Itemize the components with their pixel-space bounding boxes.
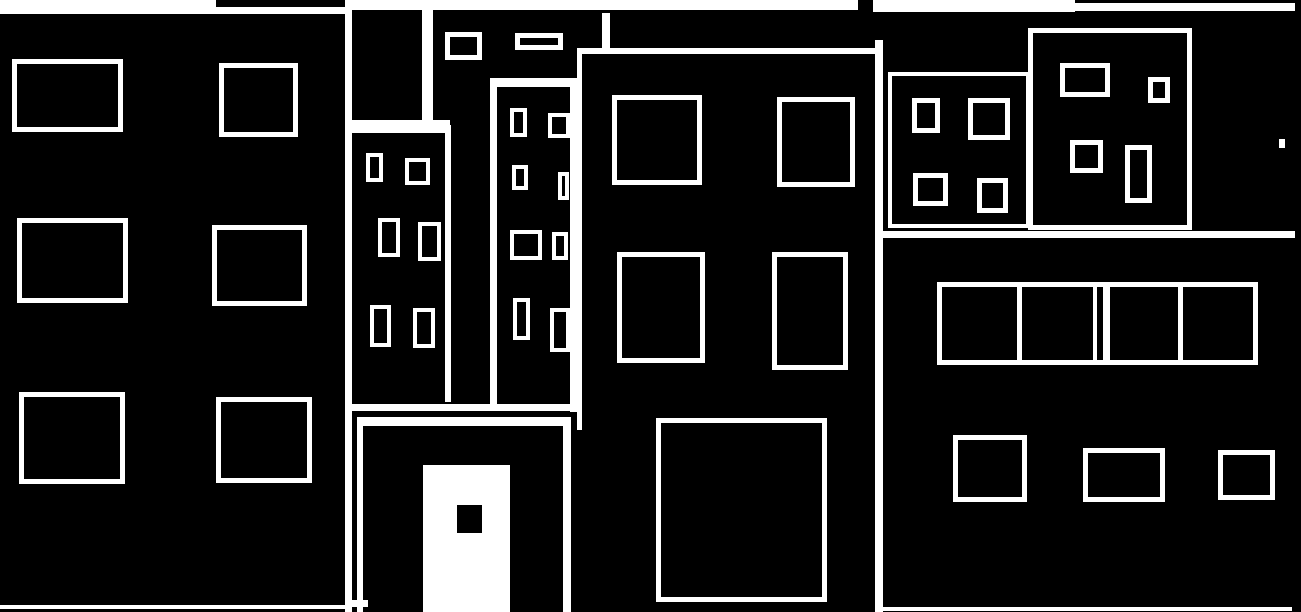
right-window-low-1 [953,435,1027,502]
center-roof-tick [602,13,610,48]
center-big-window [656,418,827,602]
strip-divider-1 [1017,287,1022,360]
right-building-a-frame [888,72,1030,228]
strip-divider-2b [1103,287,1110,360]
bldg-a-window-2 [968,98,1010,140]
city-scene [0,0,1301,612]
left-window-r1c1 [12,59,123,132]
door-handle [457,505,482,533]
center-window-r1c2 [777,97,855,187]
tower1-window-1 [366,153,383,182]
center-window-r2c2 [772,252,848,370]
tower1-window-2 [405,158,430,185]
right-building-b-frame [1028,28,1192,230]
bldg-b-window-4 [1125,145,1152,203]
tower1-window-4 [418,222,441,261]
center-top-border [577,48,883,54]
floating-window-small [445,32,482,60]
right-ledge-band [883,231,1295,238]
right-edge-mark [1279,139,1285,148]
tower2-left-border [490,87,497,407]
tower1-window-6 [413,308,435,348]
bldg-b-window-3 [1070,140,1103,173]
door-corner-mark [352,600,368,607]
left-window-r1c2 [219,63,298,137]
tower1-gap-band [352,120,450,133]
tower1-lower-right-line [445,125,451,402]
door-lintel-line [345,404,580,411]
right-window-low-3 [1218,450,1275,500]
tower2-top-border [490,78,577,87]
bldg-a-window-3 [913,173,948,206]
tower2-window-2 [548,113,570,138]
door-panel [423,465,510,612]
bldg-b-window-2 [1148,77,1170,103]
top-band-right-thin [1075,3,1295,11]
tower1-window-3 [378,218,400,257]
strip-divider-2a [1093,287,1097,360]
tower2-window-5 [510,230,542,260]
center-window-r1c1 [612,95,702,185]
tower1-roof-right-line [422,8,433,120]
bldg-a-window-4 [977,178,1008,213]
tower2-window-8 [550,308,570,352]
window-strip-frame [937,282,1258,365]
tower2-window-1 [510,108,527,137]
tower2-window-7 [513,298,530,340]
center-window-r2c1 [617,252,705,363]
tower2-window-4 [558,172,569,200]
left-facade-divider-line [345,0,352,612]
right-window-low-2 [1083,448,1165,502]
top-band-left [0,0,216,14]
bldg-b-window-1 [1060,63,1110,97]
top-band-right [873,0,1075,12]
left-window-r3c2 [216,397,312,483]
strip-divider-3 [1178,287,1183,360]
bldg-a-window-1 [912,98,940,133]
left-building-baseline [0,605,345,609]
tower2-right-border [570,87,577,412]
door-frame-left [357,417,363,612]
door-frame-right [563,417,571,612]
tower1-window-5 [370,305,391,347]
top-band-left-thin [216,7,345,14]
floating-window-wide [515,33,563,50]
tower2-window-6 [552,232,568,260]
tower2-window-3 [512,165,528,190]
left-window-r2c1 [17,218,128,303]
left-window-r2c2 [212,225,307,306]
left-window-r3c1 [19,392,125,484]
center-right-border [875,40,883,612]
right-baseline [883,607,1292,611]
door-frame-top [357,417,571,426]
center-left-border [577,54,582,430]
